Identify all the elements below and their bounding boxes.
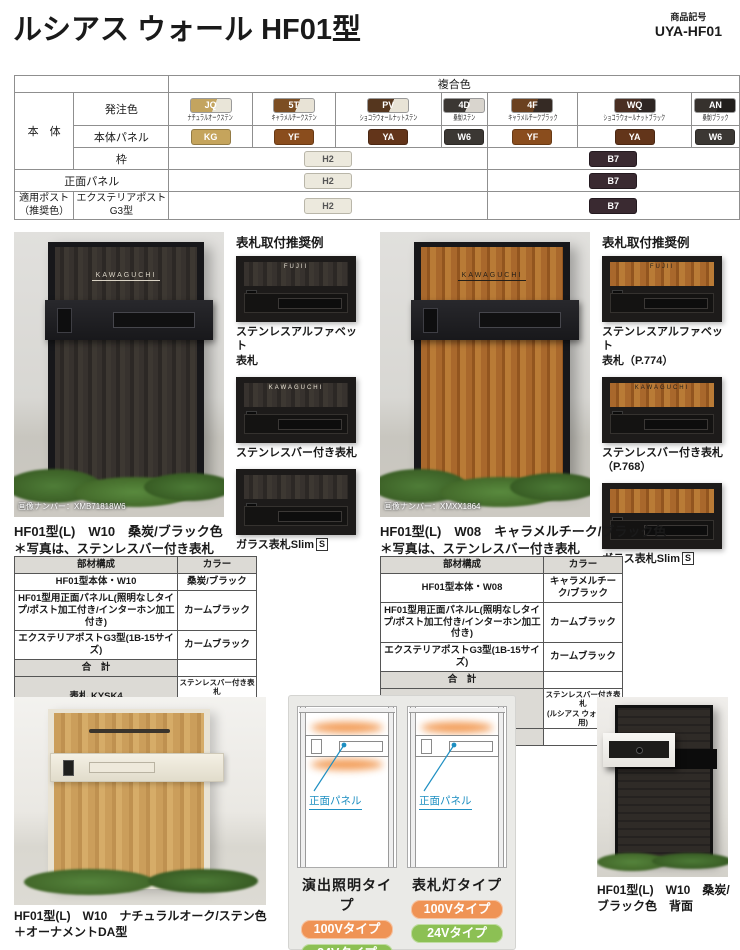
color-cell: 桑炭/ブラック bbox=[178, 573, 257, 590]
total-cell: 合 計 bbox=[381, 672, 544, 689]
badge-100v: 100Vタイプ bbox=[301, 920, 393, 939]
accent-lighting-group: 正面パネル 演出照明タイプ 100Vタイプ 24Vタイプ bbox=[295, 706, 399, 950]
panel-chip-yf2: YF bbox=[512, 129, 552, 145]
product-code-box: 商品記号 UYA-HF01 bbox=[655, 12, 722, 40]
col-header-part: 部材構成 bbox=[15, 557, 178, 574]
front-panel-label: 正面パネル bbox=[309, 793, 362, 810]
thumb-nameplate-text: FUJII bbox=[602, 264, 722, 270]
s-mark: S bbox=[682, 552, 694, 565]
col-header-color: カラー bbox=[178, 557, 257, 574]
thumb-nameplate-text: FUJII bbox=[236, 264, 356, 270]
thumb-alphabet-plate: FUJII bbox=[236, 256, 356, 322]
thumb-caption: ステンレスバー付き表札 bbox=[236, 446, 364, 460]
color-cell: カームブラック bbox=[544, 602, 623, 643]
lighting-types-card: 正面パネル 演出照明タイプ 100Vタイプ 24Vタイプ bbox=[288, 695, 516, 950]
part-cell: HF01型用正面パネルL(照明なしタイプ/ポスト加工付き/インターホン加工付き) bbox=[381, 602, 544, 643]
diagonal-header-cell bbox=[15, 76, 169, 93]
part-cell: HF01型用正面パネルL(照明なしタイプ/ポスト加工付き/インターホン加工付き) bbox=[15, 590, 178, 631]
color-cell: カームブラック bbox=[544, 643, 623, 672]
color-chip-4d: 4D bbox=[443, 98, 485, 113]
photo-caption-note: ＊写真は、ステンレスバー付き表札 bbox=[380, 538, 580, 557]
panel-chip-yf: YF bbox=[274, 129, 314, 145]
frame-chip-h2: H2 bbox=[304, 151, 352, 167]
wall-rear bbox=[615, 705, 713, 863]
color-name-jq: ナチュラルオークステン bbox=[188, 113, 233, 123]
color-name-4f: キャラメルチークブラック bbox=[508, 113, 557, 123]
post-slot bbox=[113, 312, 195, 328]
nameplate-bar bbox=[89, 729, 170, 733]
color-chip-wq: WQ bbox=[614, 98, 656, 113]
total-cell: 合 計 bbox=[15, 660, 178, 677]
nameplate-examples-left: 表札取付推奨例 FUJII ステンレスアルファベット表札 KAWAGUCHI ス… bbox=[236, 232, 364, 561]
bottom-left-caption: HF01型(L) W10 ナチュラルオーク/ステン色＋オーナメントDA型 bbox=[14, 908, 324, 940]
thumb-caption: ステンレスアルファベット表札（P.774） bbox=[602, 325, 730, 368]
front-panel-label: 正面パネル bbox=[419, 793, 472, 810]
panel-chip-w62: W6 bbox=[695, 129, 735, 145]
order-color-cell: 4Fキャラメルチークブラック bbox=[487, 93, 578, 126]
color-chip-4f: 4F bbox=[511, 98, 553, 113]
frame-chip-b7: B7 bbox=[589, 151, 637, 167]
panel-chip-ya2: YA bbox=[615, 129, 655, 145]
product-code-label: 商品記号 bbox=[655, 12, 722, 23]
nameplate-text: KAWAGUCHI bbox=[48, 272, 204, 279]
nameplate-text: KAWAGUCHI bbox=[414, 272, 570, 279]
color-name-wq: ショコラウォールナットブラック bbox=[604, 113, 666, 123]
thumb-alphabet-plate: FUJII bbox=[602, 256, 722, 322]
color-name-5t: キャラメルチークステン bbox=[271, 113, 316, 123]
leader-line bbox=[408, 707, 506, 867]
order-color-cell: PVショコラウォールナットステン bbox=[335, 93, 441, 126]
part-cell: エクステリアポストG3型(1B-15サイズ) bbox=[381, 643, 544, 672]
color-chip-an: AN bbox=[694, 98, 736, 113]
front-panel-chip-b7: B7 bbox=[589, 173, 637, 189]
wall-dark: KAWAGUCHI bbox=[48, 242, 204, 490]
thumb-caption: ステンレスアルファベット表札 bbox=[236, 325, 364, 368]
thumb-nameplate-text: KAWAGUCHI bbox=[602, 385, 722, 391]
badge-100v: 100Vタイプ bbox=[411, 900, 503, 919]
thumb-nameplate-text: KAWAGUCHI bbox=[236, 385, 356, 391]
thumb-glass-plate bbox=[236, 469, 356, 535]
panel-chip-w6: W6 bbox=[444, 129, 484, 145]
row-label-post: 適用ポスト（推奨色） bbox=[15, 192, 74, 220]
col-header-part: 部材構成 bbox=[381, 557, 544, 574]
post-slot bbox=[89, 762, 155, 773]
order-color-cell: JQナチュラルオークステン bbox=[169, 93, 252, 126]
row-label-body: 本 体 bbox=[15, 93, 74, 170]
row-label-frame: 枠 bbox=[74, 148, 169, 170]
s-mark: S bbox=[316, 538, 328, 551]
catalog-page: ルシアス ウォール HF01型 商品記号 UYA-HF01 左右あり 照明 複合… bbox=[0, 0, 740, 950]
part-cell: エクステリアポストG3型(1B-15サイズ) bbox=[15, 631, 178, 660]
recommend-title: 表札取付推奨例 bbox=[236, 232, 364, 251]
post-slot bbox=[479, 312, 561, 328]
nameplate-light-group: 正面パネル 表札灯タイプ 100Vタイプ 24Vタイプ bbox=[405, 706, 509, 943]
type-title-accent: 演出照明タイプ bbox=[295, 875, 399, 915]
row-label-front-panel: 正面パネル bbox=[15, 170, 169, 192]
col-header-color: カラー bbox=[544, 557, 623, 574]
post-product-name: エクステリアポストG3型 bbox=[74, 192, 169, 220]
order-color-cell: AN桑炭/ブラック bbox=[691, 93, 739, 126]
image-number: 画像ナンバー：XMB71818W6 bbox=[18, 501, 126, 512]
color-chip-pv: PV bbox=[367, 98, 409, 113]
rear-post-box bbox=[603, 733, 675, 767]
post-chip-h2: H2 bbox=[304, 198, 352, 214]
color-cell: カームブラック bbox=[178, 631, 257, 660]
post-chip-b7: B7 bbox=[589, 198, 637, 214]
row-label-order-color: 発注色 bbox=[74, 93, 169, 126]
accent-lighting-diagram: 正面パネル bbox=[297, 706, 397, 868]
wall-oak bbox=[48, 709, 210, 889]
part-cell: HF01型本体・W08 bbox=[381, 573, 544, 602]
interphone bbox=[423, 308, 438, 333]
shrub bbox=[510, 473, 590, 501]
order-color-cell: 4D桑炭/ステン bbox=[441, 93, 487, 126]
leader-line bbox=[298, 707, 396, 867]
color-name-4d: 桑炭/ステン bbox=[452, 113, 477, 123]
shrub bbox=[148, 869, 258, 893]
shrub bbox=[24, 869, 154, 895]
bottom-right-caption: HF01型(L) W10 桑炭/ブラック色 背面 bbox=[597, 882, 733, 914]
color-name-pv: ショコラウォールナットステン bbox=[359, 113, 417, 123]
nameplate-light-diagram: 正面パネル bbox=[407, 706, 507, 868]
color-name-an: 桑炭/ブラック bbox=[702, 113, 728, 123]
color-chip-5t: 5T bbox=[273, 98, 315, 113]
order-color-cell: 5Tキャラメルチークステン bbox=[252, 93, 335, 126]
front-panel-band bbox=[50, 753, 224, 782]
panel-chip-kg: KG bbox=[191, 129, 231, 145]
front-panel-band bbox=[411, 300, 579, 340]
shrub bbox=[652, 853, 728, 869]
thumb-bar-plate: KAWAGUCHI bbox=[602, 377, 722, 443]
image-number: 画像ナンバー：XMXX1864 bbox=[384, 501, 480, 512]
badge-24v: 24Vタイプ bbox=[301, 944, 393, 950]
color-cell: キャラメルチーク/ブラック bbox=[544, 573, 623, 602]
order-color-cell: WQショコラウォールナットブラック bbox=[578, 93, 692, 126]
thumb-caption: ステンレスバー付き表札（P.768） bbox=[602, 446, 730, 475]
page-title: ルシアス ウォール HF01型 bbox=[13, 6, 361, 48]
recommend-title: 表札取付推奨例 bbox=[602, 232, 730, 251]
product-photo-teak: KAWAGUCHI 画像ナンバー：XMXX1864 bbox=[380, 232, 590, 517]
shrub bbox=[144, 473, 224, 501]
interphone bbox=[63, 760, 74, 776]
wall-teak: KAWAGUCHI bbox=[414, 242, 570, 490]
color-cell: カームブラック bbox=[178, 590, 257, 631]
part-cell: HF01型本体・W10 bbox=[15, 573, 178, 590]
color-chip-jq: JQ bbox=[190, 98, 232, 113]
front-panel-band bbox=[45, 300, 213, 340]
thumb-bar-plate: KAWAGUCHI bbox=[236, 377, 356, 443]
photo-caption-note: ＊写真は、ステンレスバー付き表札 bbox=[14, 538, 214, 557]
type-title-nameplate: 表札灯タイプ bbox=[405, 875, 509, 895]
panel-chip-ya: YA bbox=[368, 129, 408, 145]
composite-color-header: 複合色 bbox=[169, 76, 740, 93]
front-panel-chip-h2: H2 bbox=[304, 173, 352, 189]
product-code: UYA-HF01 bbox=[655, 23, 722, 40]
thumb-caption: ガラス表札SlimS bbox=[236, 538, 364, 552]
color-spec-table: 複合色 本 体 発注色 JQナチュラルオークステン 5Tキャラメルチークステン … bbox=[14, 75, 740, 220]
product-photo-oak bbox=[14, 697, 266, 905]
row-label-body-panel: 本体パネル bbox=[74, 126, 169, 148]
badge-24v: 24Vタイプ bbox=[411, 924, 503, 943]
product-photo-rear bbox=[597, 697, 728, 877]
interphone bbox=[57, 308, 72, 333]
product-photo-dark: KAWAGUCHI 画像ナンバー：XMB71818W6 bbox=[14, 232, 224, 517]
